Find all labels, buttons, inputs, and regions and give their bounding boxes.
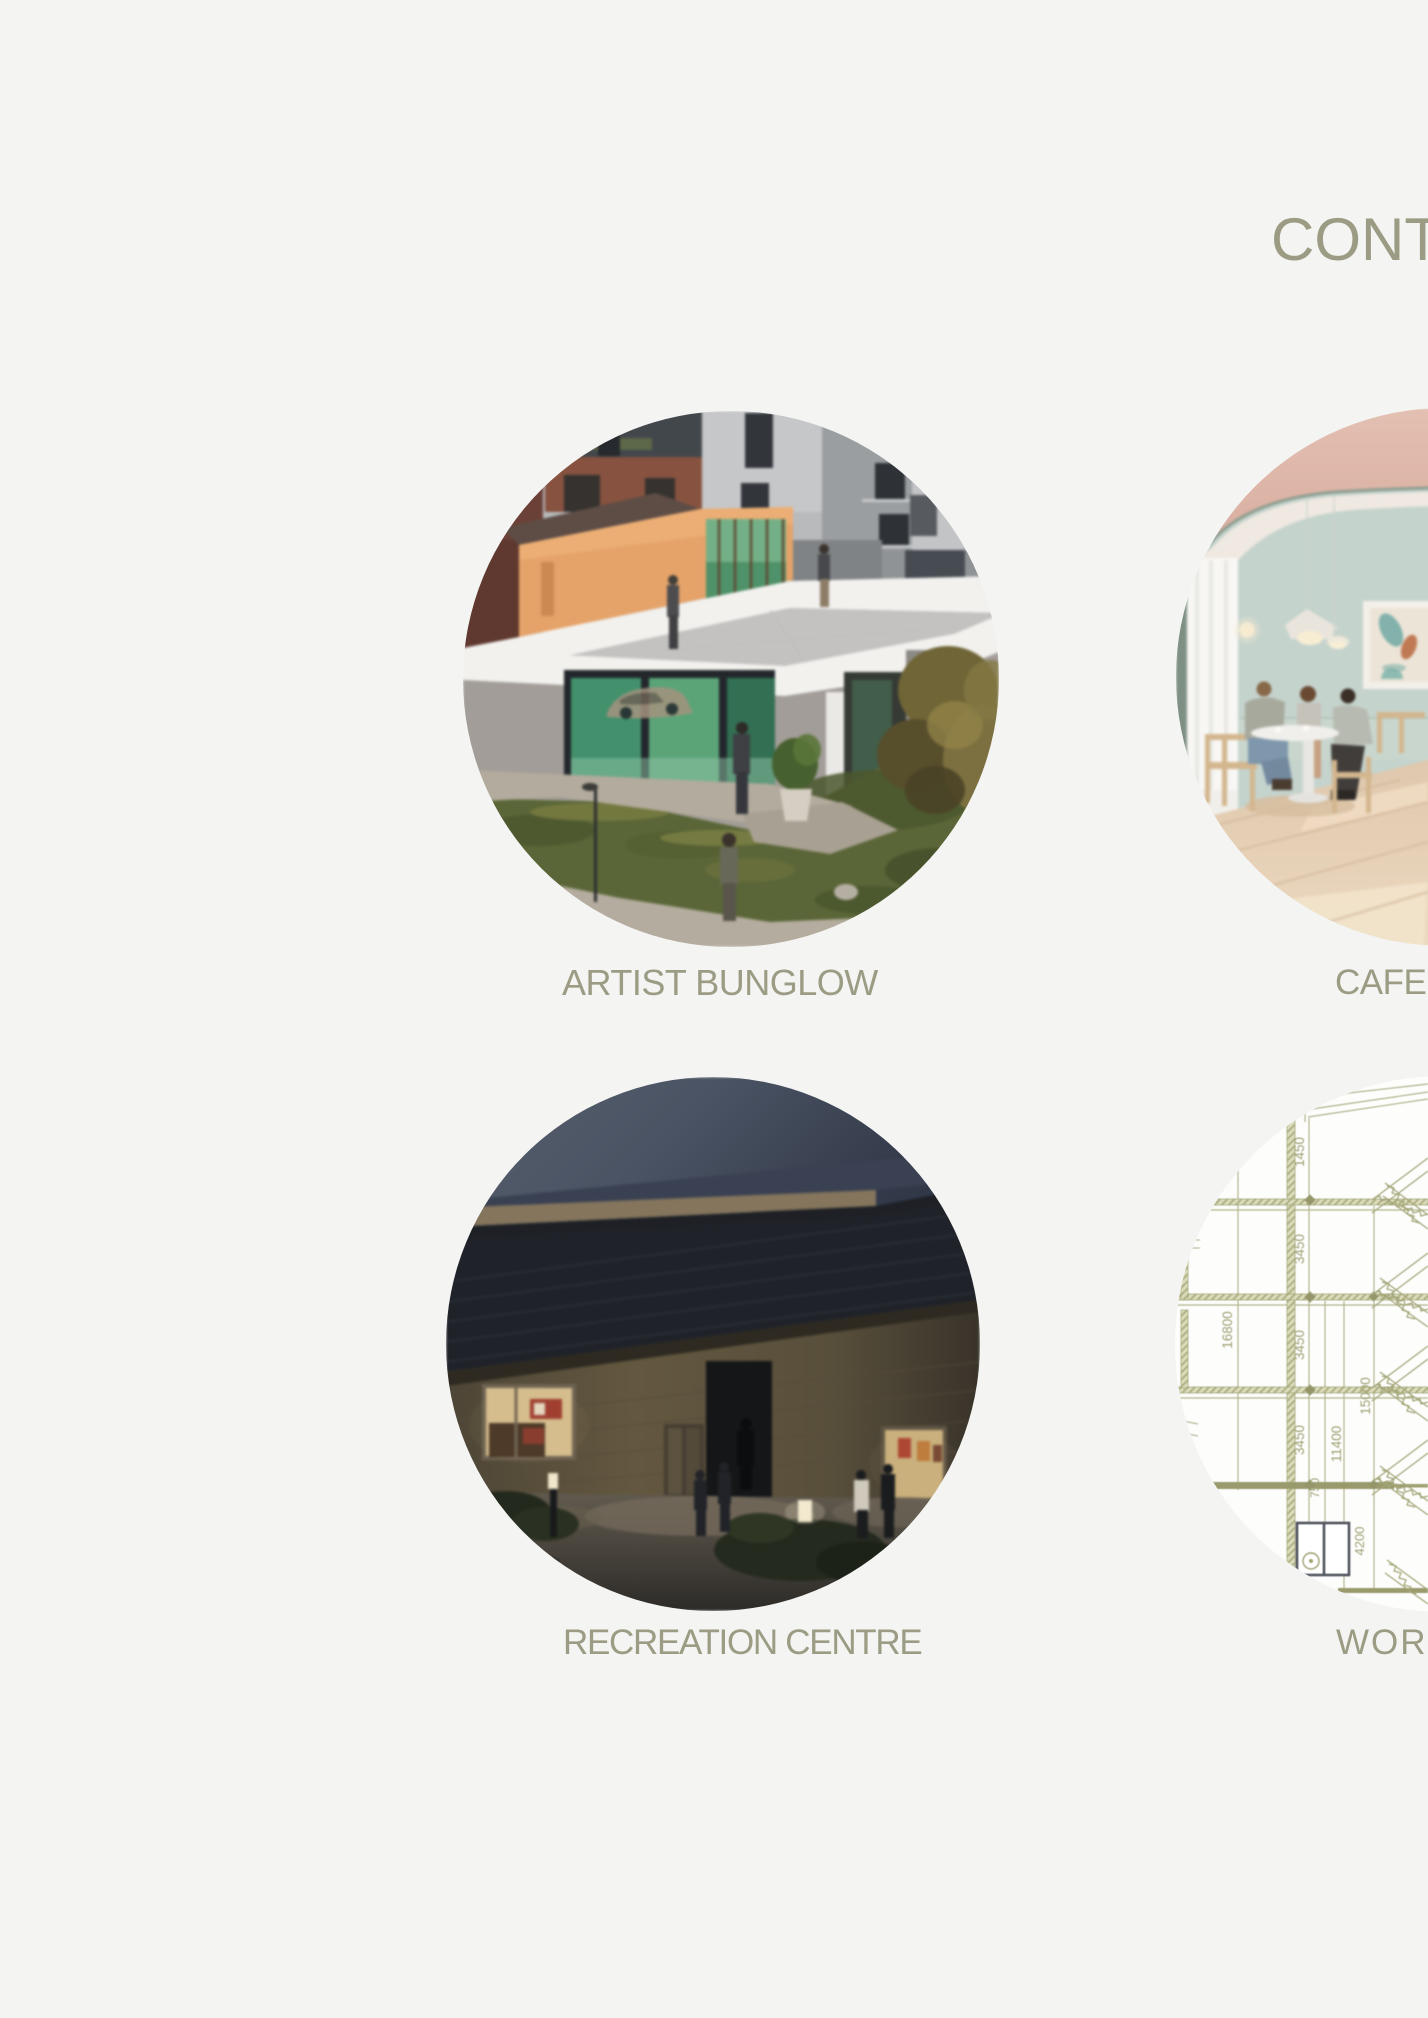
svg-text:3450: 3450 — [1292, 1425, 1307, 1455]
svg-text:3450: 3450 — [1292, 1330, 1307, 1360]
svg-text:15000: 15000 — [1358, 1377, 1373, 1415]
svg-text:16800: 16800 — [1220, 1311, 1235, 1349]
svg-text:11400: 11400 — [1329, 1426, 1344, 1463]
svg-text:4200: 4200 — [1352, 1527, 1367, 1556]
svg-text:1450: 1450 — [1292, 1137, 1307, 1167]
svg-text:750: 750 — [1308, 1478, 1322, 1498]
svg-text:3450: 3450 — [1292, 1234, 1307, 1264]
